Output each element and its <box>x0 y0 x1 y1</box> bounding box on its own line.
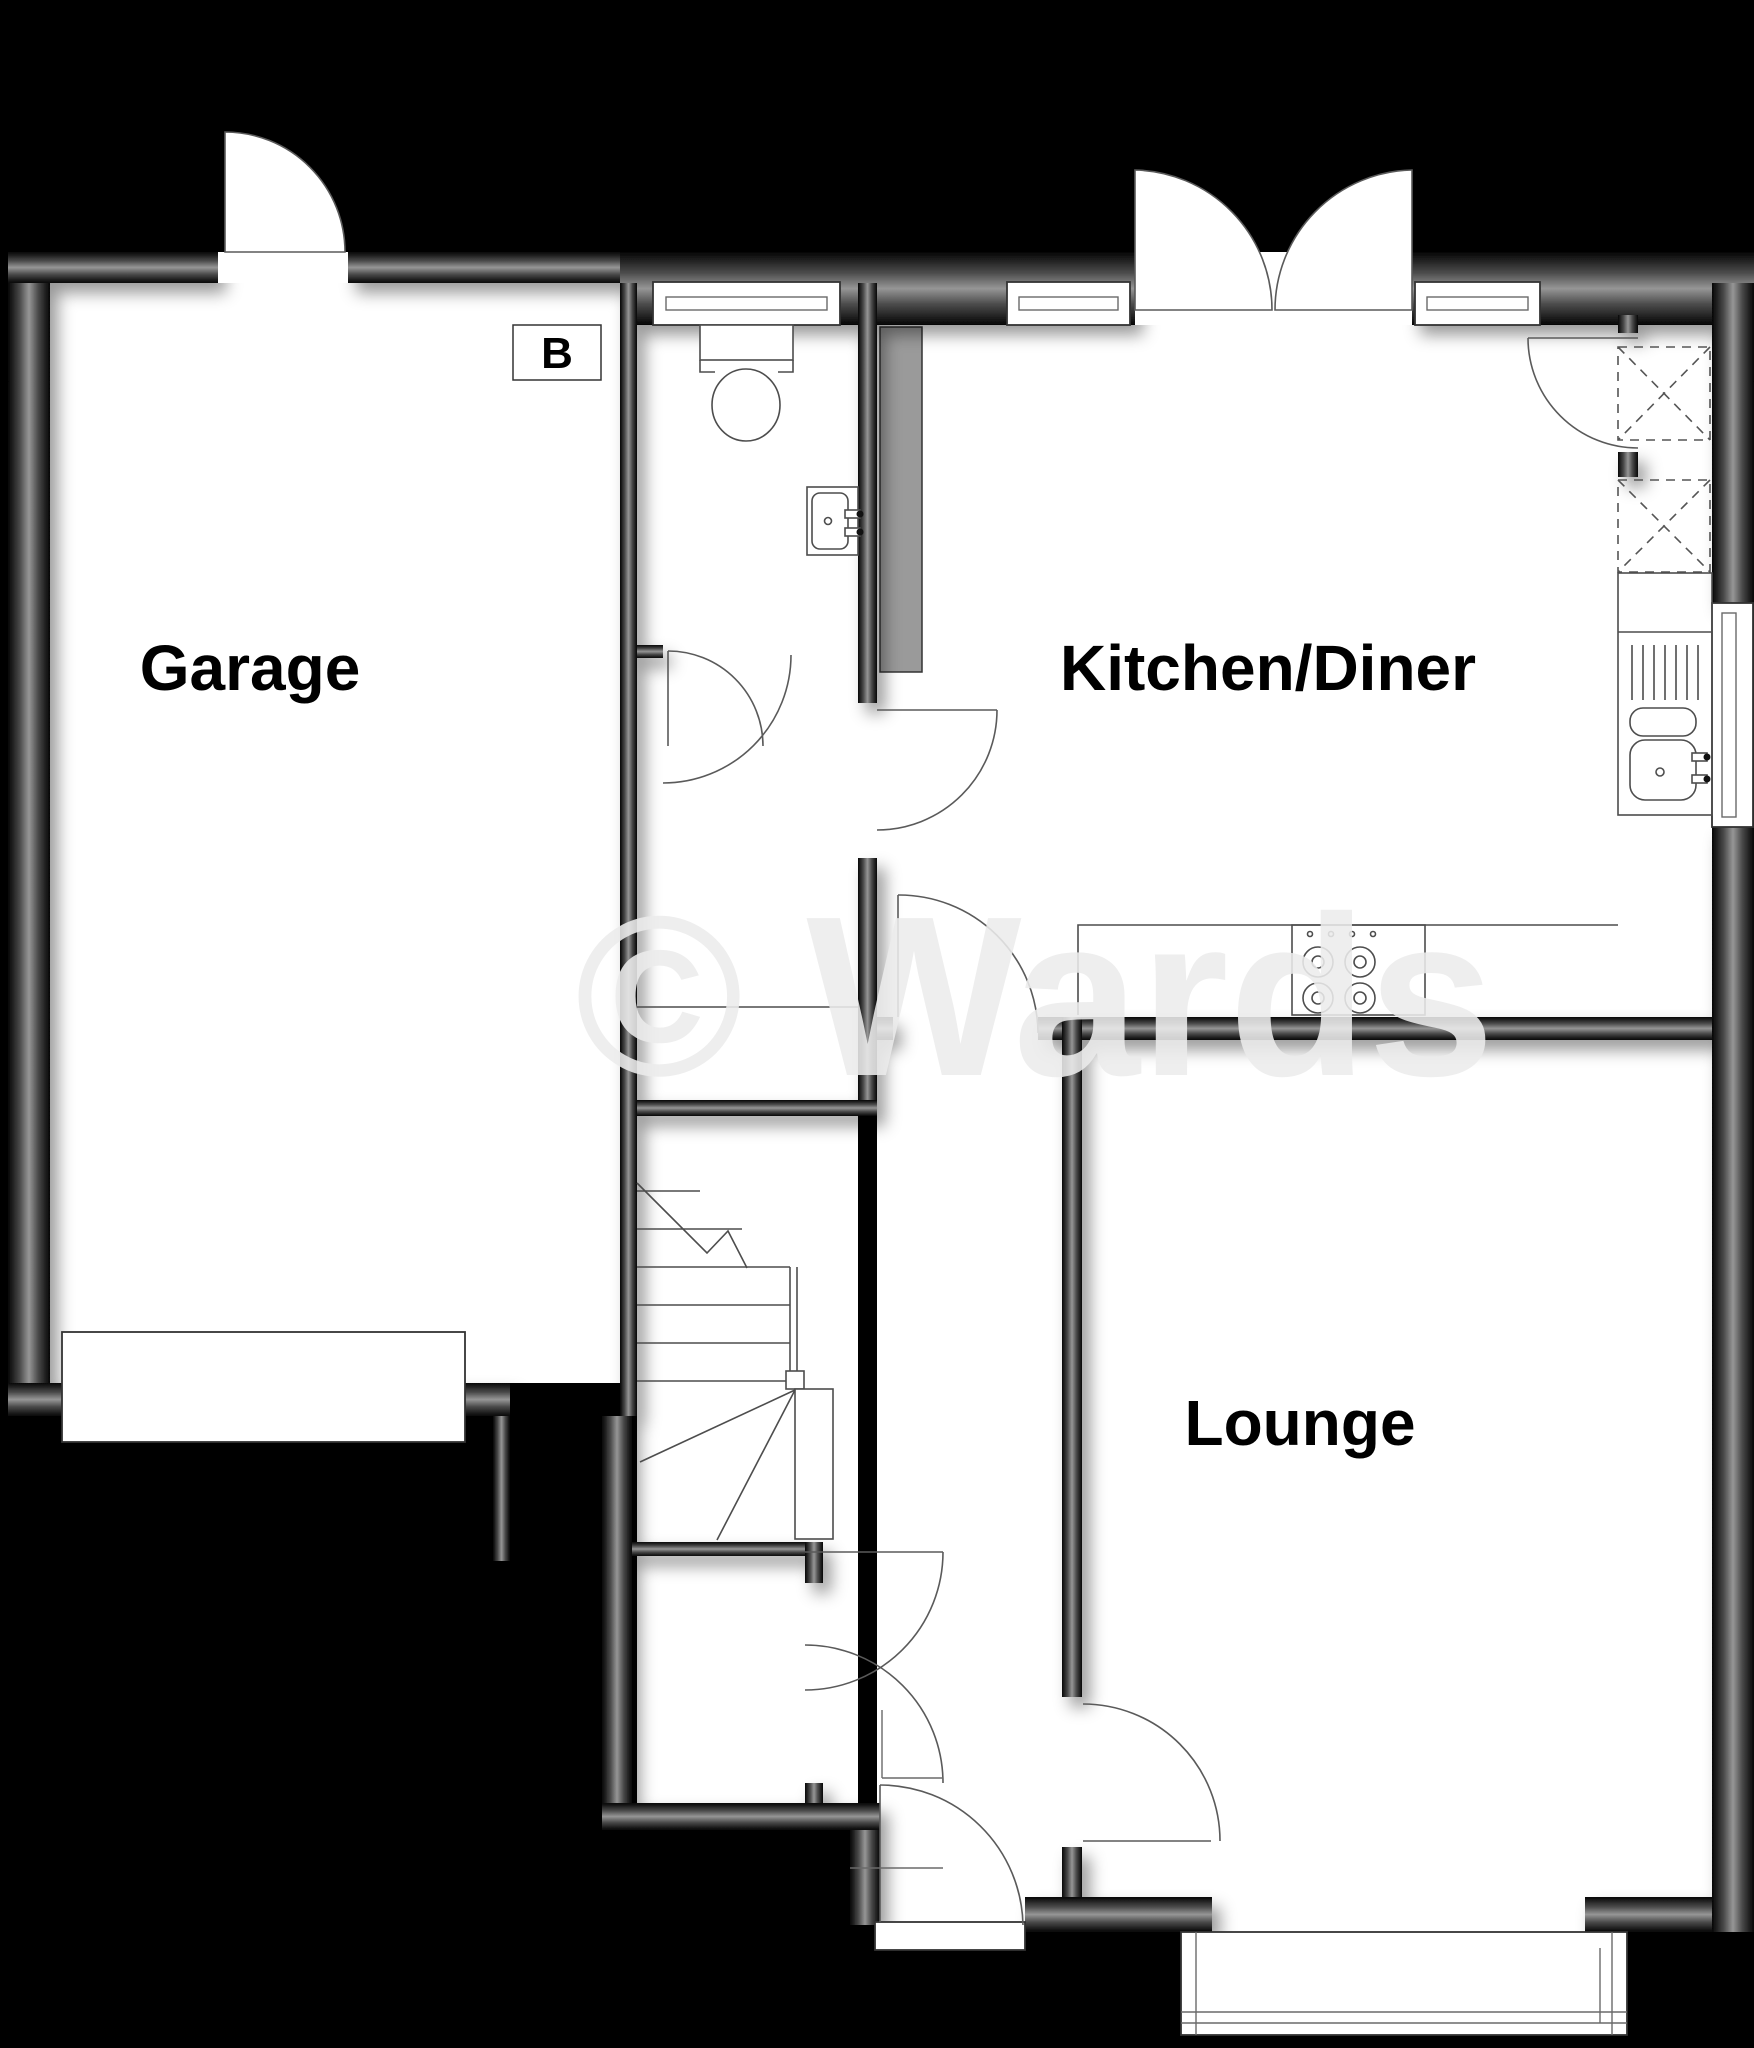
bay-window <box>1181 1932 1627 2035</box>
wall-outer-right-bottom <box>1712 827 1754 1932</box>
boiler-badge: B <box>513 325 601 380</box>
wall-hall-outer-left <box>602 1416 632 1803</box>
garage-vehicle-door <box>62 1332 465 1442</box>
garage-floor <box>50 283 620 1383</box>
front-door-threshold <box>875 1922 1025 1950</box>
wc-doorway-gap <box>858 703 877 858</box>
kitchen-room-label: Kitchen/Diner <box>1060 632 1476 704</box>
floor-plan-page: B Garage Kitchen/Diner Lounge © Wards <box>0 0 1754 2048</box>
lounge-doorway-gap <box>1062 1697 1082 1847</box>
entrance-floor <box>877 1830 1025 1925</box>
wall-lounge-bottom-left <box>1025 1897 1212 1932</box>
wall-front-step <box>850 1830 880 1925</box>
wc-window <box>653 282 840 325</box>
wall-hall-bottom <box>602 1803 880 1830</box>
french-door-left-leaf <box>1135 170 1272 310</box>
wall-dbl-door-stub-bottom <box>805 1783 823 1803</box>
watermark-text: © Wards <box>575 870 1495 1124</box>
lounge-floor <box>1082 1040 1712 1897</box>
wall-lounge-left-stub <box>1062 1847 1082 1897</box>
bay-opening-floor <box>1212 1897 1585 1932</box>
wall-pantry-stub-top <box>1618 315 1638 333</box>
wall-outer-right-top <box>1712 283 1754 603</box>
wc-sink-icon <box>807 487 864 555</box>
wall-dbl-door-stub-top <box>805 1542 823 1583</box>
wall-stairs-bottom <box>627 1542 823 1556</box>
wall-lounge-bottom-right <box>1585 1897 1712 1932</box>
kitchen-side-window <box>1712 603 1753 827</box>
wall-garage-divider <box>620 283 637 1416</box>
kitchen-window-right <box>1415 282 1540 325</box>
corridor-floor <box>877 1040 1062 1897</box>
kitchen-window-left <box>1007 282 1130 325</box>
lounge-room-label: Lounge <box>1184 1387 1415 1459</box>
wall-garage-top-left <box>8 252 218 283</box>
garage-ped-door <box>225 132 345 252</box>
floor-plan-svg: B Garage Kitchen/Diner Lounge © Wards <box>0 0 1754 2048</box>
garage-room-label: Garage <box>140 632 361 704</box>
wall-porch-stub <box>493 1416 510 1561</box>
french-door-right-leaf <box>1275 170 1412 310</box>
boiler-label: B <box>541 329 573 378</box>
duct-block <box>880 327 922 672</box>
wall-outer-left <box>8 283 50 1383</box>
garage-ped-door-opening <box>218 252 348 283</box>
wall-wc-right <box>858 283 877 703</box>
wall-pantry-stub-bottom <box>1618 452 1638 477</box>
wall-garage-top-right <box>348 252 620 283</box>
